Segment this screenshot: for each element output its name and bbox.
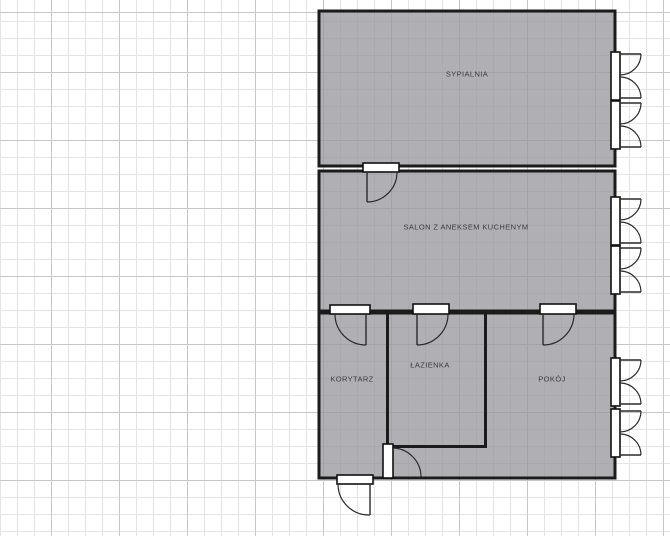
room-label-salon: SALON Z ANEKSEM KUCHENYM <box>403 223 528 232</box>
room-sypialnia[interactable] <box>319 11 615 166</box>
entrance-door[interactable] <box>337 475 373 515</box>
window-salon-lower[interactable] <box>611 246 641 294</box>
room-bottom-section[interactable] <box>319 313 615 478</box>
room-label-korytarz: KORYTARZ <box>330 375 373 384</box>
room-label-sypialnia: SYPIALNIA <box>446 70 488 79</box>
room-label-lazienka: ŁAZIENKA <box>410 361 449 370</box>
window-pokoj-lower[interactable] <box>611 409 641 457</box>
window-salon-upper[interactable] <box>611 197 641 245</box>
window-pokoj-upper[interactable] <box>611 358 641 406</box>
floorplan-drawing <box>0 0 670 536</box>
window-sypialnia-lower[interactable] <box>611 101 641 149</box>
room-label-pokoj: POKÓJ <box>538 375 565 384</box>
window-sypialnia-upper[interactable] <box>611 52 641 100</box>
floorplan-canvas: SYPIALNIA SALON Z ANEKSEM KUCHENYM KORYT… <box>0 0 670 536</box>
room-salon[interactable] <box>319 171 615 311</box>
